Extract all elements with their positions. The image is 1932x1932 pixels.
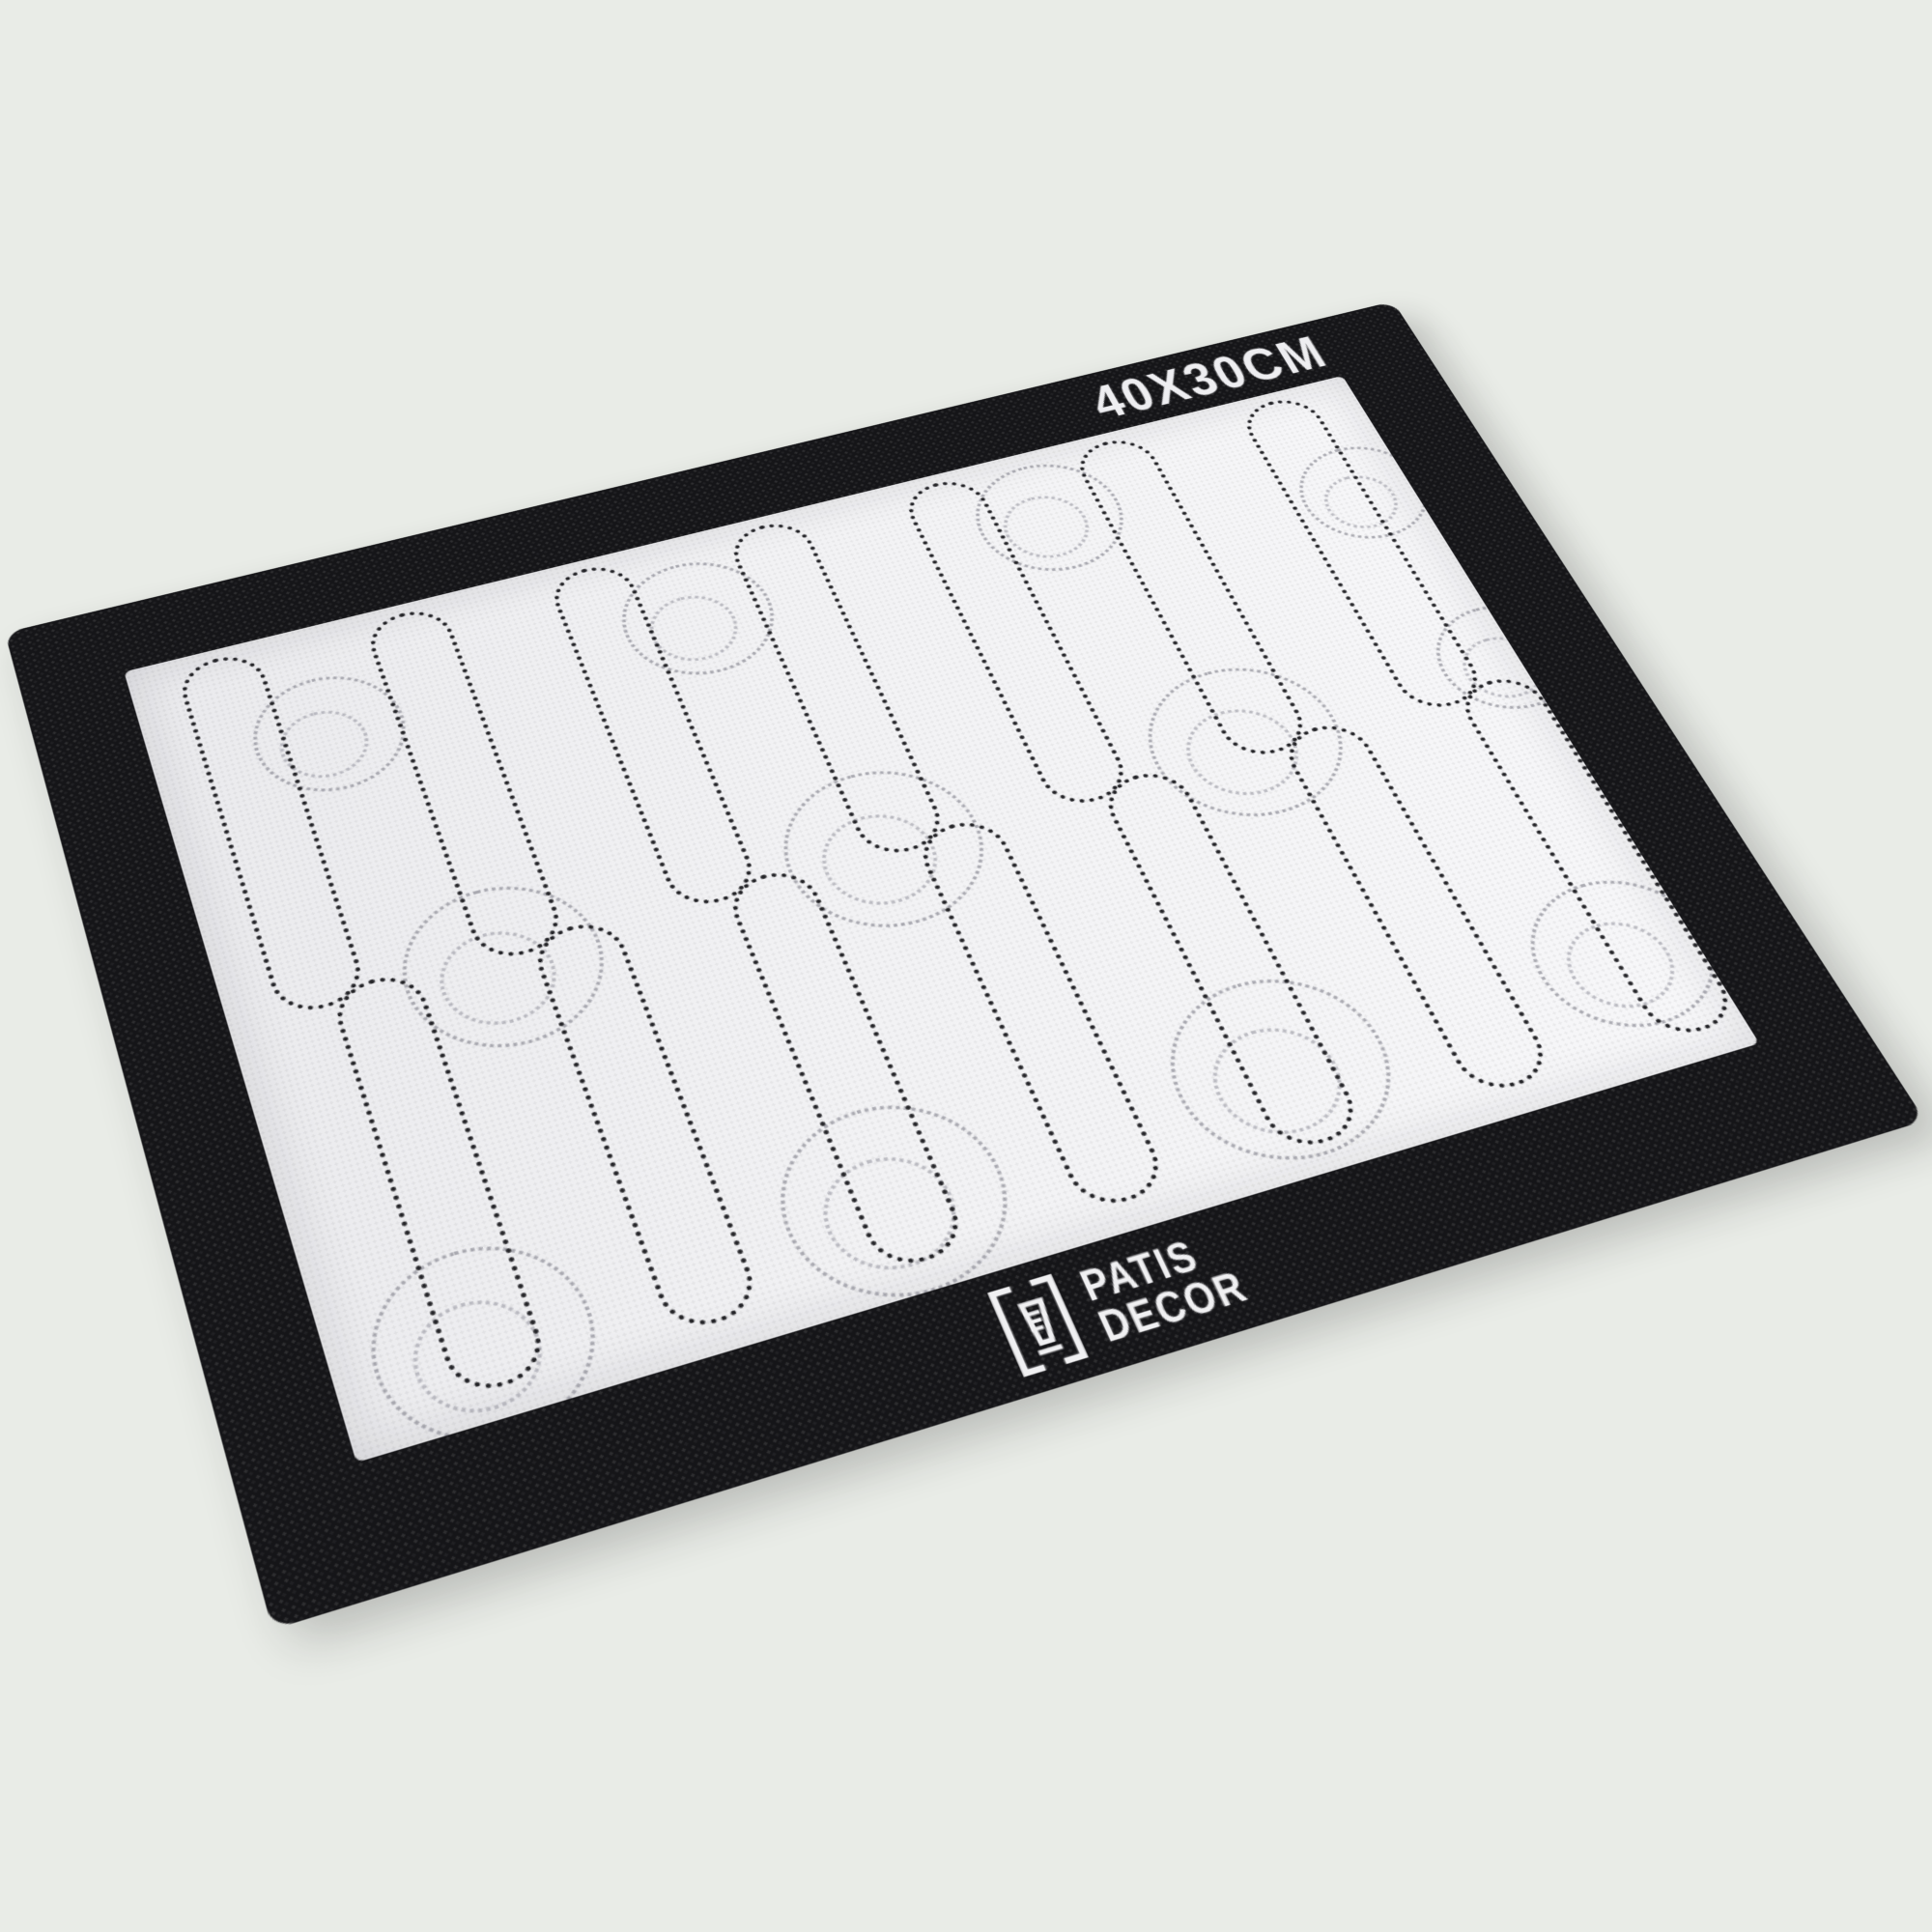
mat-surface [124, 376, 1759, 1463]
product-photo: 40X30CM PATIS DECOR [0, 0, 1932, 1932]
brand-wordmark: PATIS DECOR [1074, 1226, 1254, 1350]
piping-guides [124, 376, 1342, 672]
piping-bag-icon [981, 1270, 1095, 1381]
baking-mat: 40X30CM PATIS DECOR [5, 301, 1925, 1630]
eclair-guide [361, 604, 569, 966]
